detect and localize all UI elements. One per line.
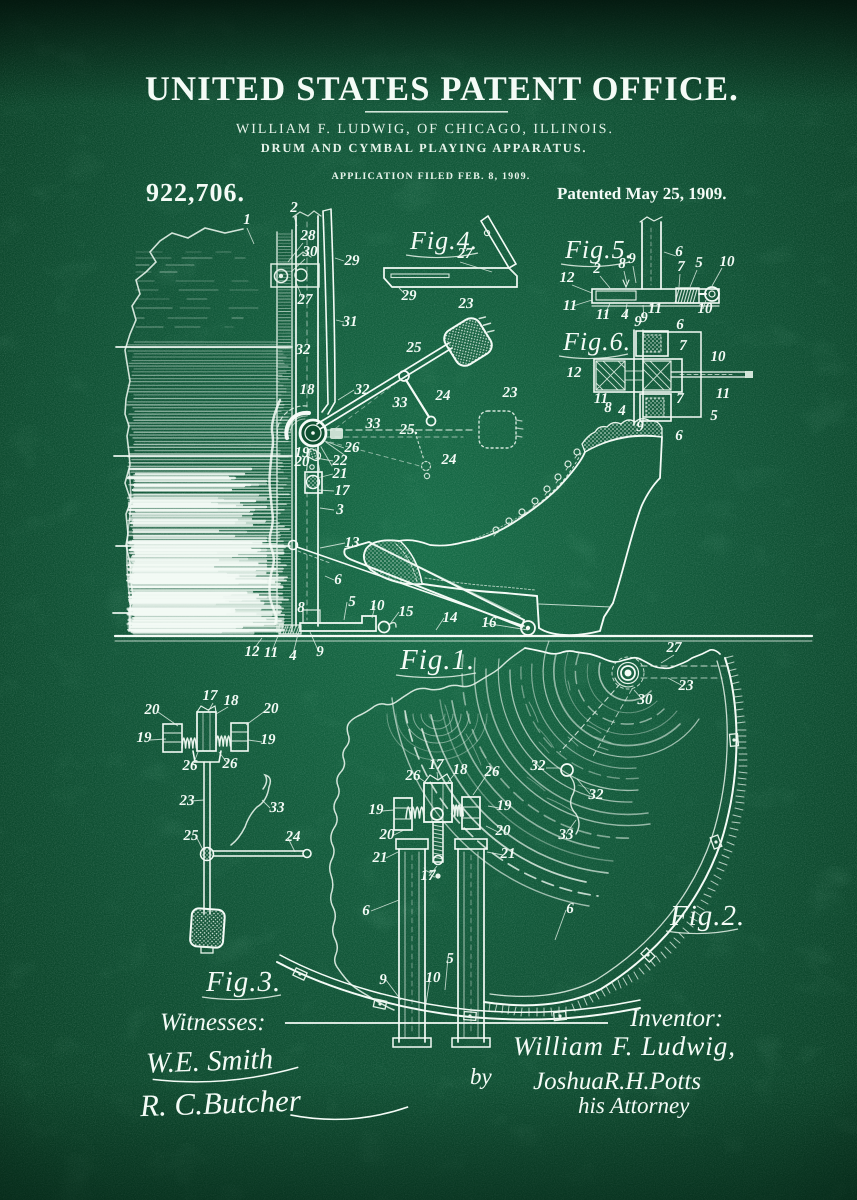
svg-text:17: 17 (429, 757, 445, 773)
svg-text:6: 6 (675, 244, 683, 260)
svg-text:29: 29 (401, 288, 418, 304)
svg-text:UNITED STATES PATENT OFFICE.: UNITED STATES PATENT OFFICE. (145, 70, 739, 108)
svg-text:30: 30 (302, 244, 319, 260)
svg-text:32: 32 (530, 758, 547, 774)
svg-text:27: 27 (666, 640, 683, 656)
svg-text:922,706.: 922,706. (146, 178, 245, 207)
svg-text:33: 33 (558, 827, 575, 843)
svg-text:32: 32 (295, 342, 312, 358)
svg-text:8: 8 (297, 600, 305, 616)
svg-text:4: 4 (620, 307, 629, 323)
svg-text:8: 8 (618, 256, 626, 272)
svg-text:6: 6 (334, 572, 342, 588)
svg-text:15: 15 (399, 604, 415, 620)
svg-text:5: 5 (695, 255, 703, 271)
svg-text:Fig.2.: Fig.2. (669, 900, 745, 932)
svg-text:9: 9 (634, 314, 642, 330)
svg-text:13: 13 (345, 535, 361, 551)
svg-text:25.: 25. (399, 422, 419, 438)
svg-text:18: 18 (453, 762, 469, 778)
svg-text:33: 33 (365, 416, 382, 432)
svg-text:30: 30 (637, 692, 654, 708)
svg-text:33: 33 (392, 395, 409, 411)
svg-text:24: 24 (435, 388, 452, 404)
svg-text:4: 4 (288, 648, 297, 664)
svg-text:19: 19 (369, 802, 385, 818)
svg-text:24: 24 (441, 452, 458, 468)
svg-text:21: 21 (372, 850, 388, 866)
svg-text:25: 25 (406, 340, 423, 356)
svg-text:19: 19 (497, 798, 513, 814)
svg-text:26: 26 (182, 758, 199, 774)
svg-text:21: 21 (332, 466, 348, 482)
svg-text:11: 11 (264, 645, 278, 661)
svg-text:R. C.Butcher: R. C.Butcher (138, 1083, 302, 1124)
svg-text:17: 17 (203, 688, 219, 704)
svg-text:19: 19 (137, 730, 153, 746)
svg-text:25: 25 (183, 828, 200, 844)
svg-text:12: 12 (567, 365, 583, 381)
svg-text:6: 6 (566, 901, 574, 917)
svg-text:11: 11 (563, 298, 577, 314)
svg-text:9: 9 (316, 644, 324, 660)
svg-text:33: 33 (269, 800, 286, 816)
svg-text:32: 32 (588, 787, 605, 803)
svg-text:23: 23 (458, 296, 475, 312)
svg-text:20: 20 (379, 827, 396, 843)
svg-text:Inventor:: Inventor: (629, 1005, 723, 1032)
svg-text:20: 20 (144, 702, 161, 718)
svg-text:7: 7 (677, 259, 685, 275)
svg-text:6: 6 (362, 903, 370, 919)
svg-text:2: 2 (592, 261, 601, 277)
svg-text:7: 7 (676, 391, 684, 407)
svg-text:10: 10 (711, 349, 727, 365)
svg-text:23: 23 (678, 678, 695, 694)
svg-text:14: 14 (443, 610, 459, 626)
svg-text:32: 32 (354, 382, 371, 398)
svg-text:11: 11 (596, 307, 610, 323)
svg-text:3: 3 (335, 502, 344, 518)
svg-text:11: 11 (716, 386, 730, 402)
svg-text:24: 24 (285, 829, 302, 845)
svg-text:20: 20 (263, 701, 280, 717)
svg-text:6: 6 (675, 428, 683, 444)
svg-text:William F. Ludwig,: William F. Ludwig, (513, 1031, 736, 1061)
svg-text:1: 1 (243, 212, 251, 228)
svg-text:Fig.3.: Fig.3. (205, 966, 281, 998)
svg-text:12: 12 (560, 270, 576, 286)
svg-text:Patented May 25, 1909.: Patented May 25, 1909. (557, 184, 727, 203)
svg-text:WILLIAM F. LUDWIG, OF CHICAGO,: WILLIAM F. LUDWIG, OF CHICAGO, ILLINOIS. (236, 122, 614, 137)
svg-text:16: 16 (482, 615, 498, 631)
svg-text:23: 23 (502, 385, 519, 401)
svg-text:6: 6 (676, 317, 684, 333)
svg-text:26: 26 (484, 764, 501, 780)
svg-text:29: 29 (344, 253, 361, 269)
svg-text:12: 12 (245, 644, 261, 660)
svg-text:10: 10 (426, 970, 442, 986)
svg-text:5: 5 (348, 594, 356, 610)
svg-text:17: 17 (335, 483, 351, 499)
svg-text:7: 7 (679, 338, 687, 354)
svg-text:Witnesses:: Witnesses: (160, 1009, 266, 1036)
svg-text:28: 28 (300, 228, 317, 244)
svg-text:5: 5 (710, 408, 718, 424)
svg-text:10: 10 (720, 254, 736, 270)
svg-text:4: 4 (617, 403, 626, 419)
svg-text:19: 19 (261, 732, 277, 748)
svg-text:21: 21 (500, 846, 516, 862)
svg-text:Fig.1.: Fig.1. (399, 644, 475, 676)
svg-text:26: 26 (405, 768, 422, 784)
svg-text:9: 9 (628, 251, 636, 267)
svg-text:2: 2 (289, 200, 298, 216)
svg-text:APPLICATION FILED FEB. 8, 1909: APPLICATION FILED FEB. 8, 1909. (332, 171, 531, 182)
svg-text:by: by (470, 1064, 493, 1089)
svg-text:Fig.6.: Fig.6. (562, 327, 631, 356)
svg-text:20: 20 (294, 454, 311, 470)
svg-text:W.E. Smith: W.E. Smith (146, 1043, 274, 1079)
svg-text:JoshuaR.H.Potts: JoshuaR.H.Potts (533, 1068, 701, 1095)
svg-text:DRUM AND CYMBAL PLAYING APPARA: DRUM AND CYMBAL PLAYING APPARATUS. (261, 141, 588, 155)
svg-text:27: 27 (297, 292, 314, 308)
svg-text:9: 9 (636, 419, 644, 435)
svg-text:27: 27 (457, 246, 474, 262)
svg-text:18: 18 (300, 382, 316, 398)
svg-text:his Attorney: his Attorney (578, 1093, 690, 1118)
svg-text:18: 18 (224, 693, 240, 709)
svg-text:8: 8 (604, 400, 612, 416)
svg-text:10: 10 (370, 598, 386, 614)
